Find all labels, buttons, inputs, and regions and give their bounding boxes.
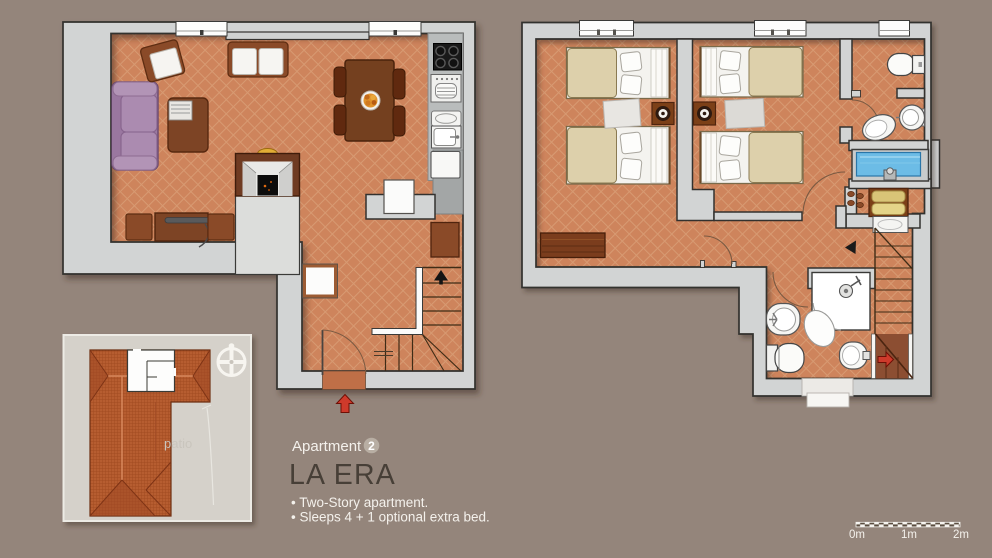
svg-text:1m: 1m (901, 529, 917, 541)
svg-text:patio: patio (164, 436, 192, 451)
svg-text:LA ERA: LA ERA (289, 459, 396, 491)
svg-text:2m: 2m (953, 529, 969, 541)
svg-text:Apartment: Apartment (292, 438, 362, 455)
svg-text:0m: 0m (849, 529, 865, 541)
svg-text:• Two-Story apartment.: • Two-Story apartment. (291, 495, 428, 510)
svg-text:2: 2 (368, 439, 375, 453)
svg-text:• Sleeps 4 + 1 optional extra: • Sleeps 4 + 1 optional extra bed. (291, 510, 490, 525)
